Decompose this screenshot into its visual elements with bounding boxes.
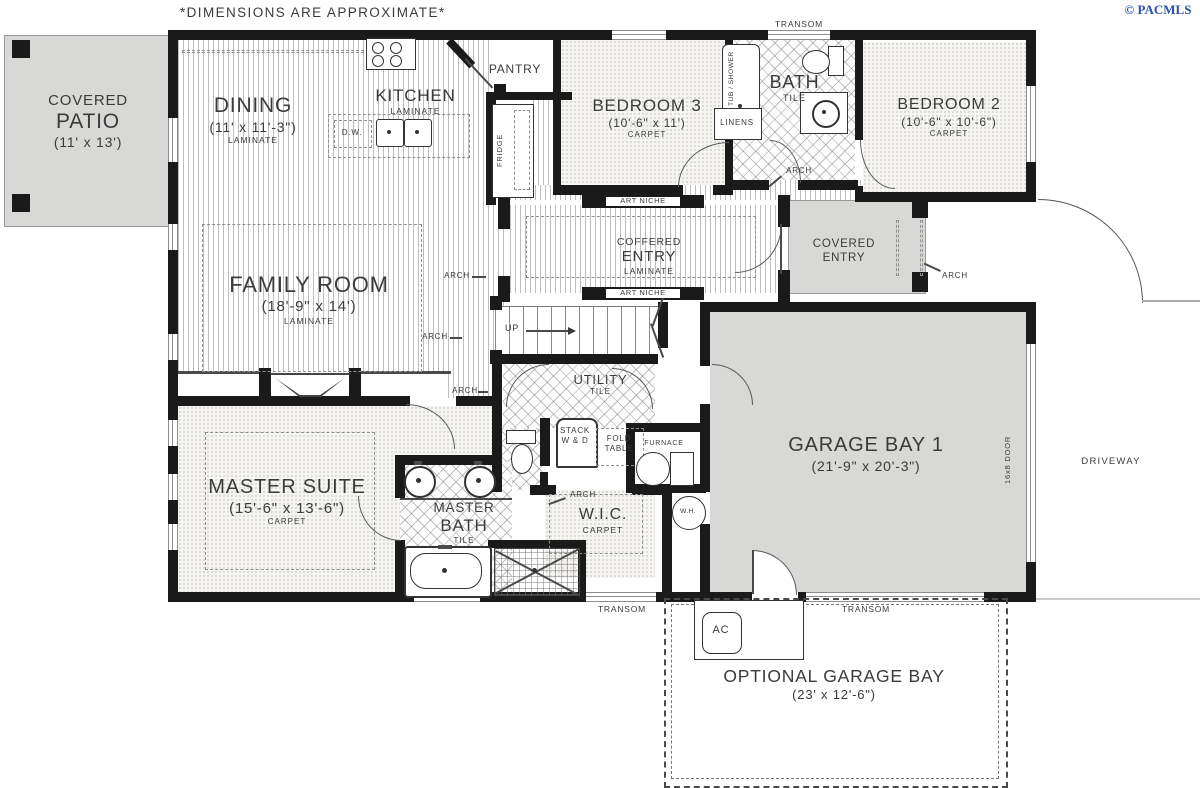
wall-segment [778,195,790,227]
furnace-unit [670,452,694,486]
art-niche-label: ART NICHE [606,289,680,298]
room-label-dining: DINING (11' x 11'-3") LAMINATE [178,94,328,145]
wall-segment [855,186,863,202]
copyright-watermark: © PACMLS [1118,2,1198,17]
up-label: UP [500,323,524,334]
wall-segment [666,30,768,40]
wall-segment [830,30,862,40]
wall-segment [456,396,496,406]
site-line [1142,300,1200,302]
arch-label: ARCH [782,166,816,175]
sink-drain [387,130,391,134]
entry-swing-arc [1038,199,1143,303]
arch-label: ARCH [448,386,482,395]
fridge-label: FRIDGE [496,112,512,188]
arch-label: ARCH [440,271,474,280]
arch-leader [478,391,488,393]
door-leaf [780,224,782,274]
art-niche-label: ART NICHE [606,197,680,206]
arch-label: ARCH [566,490,600,499]
site-line [1036,598,1200,600]
stack-wd-label: STACK W & D [551,426,599,447]
patio-post [12,40,30,58]
arch-leader [924,263,941,272]
toilet-bowl [511,444,533,474]
fireplace-hearth-inner [271,375,349,395]
wall-segment [168,396,410,406]
wall-segment [662,485,672,592]
room-label-kitchen: KITCHEN LAMINATE [348,86,483,116]
room-label-utility: UTILITY TILE [548,372,653,397]
wall-segment [778,270,790,302]
wall-segment [1026,30,1036,86]
room-label-covered-entry: COVERED ENTRY [795,238,893,265]
hall-floor [533,100,553,185]
up-arrow-head [568,327,576,335]
floor-plan: *DIMENSIONS ARE APPROXIMATE* © PACMLS [0,0,1200,788]
wall-segment [494,84,506,96]
room-label-bedroom3: BEDROOM 3 (10'-6" x 11') CARPET [563,96,731,140]
wall-segment [700,312,710,366]
furnace-label: FURNACE [632,440,696,448]
arch-leader [450,337,462,339]
wall-segment [168,592,414,602]
fireplace-side [349,368,361,404]
door-leaf [752,550,754,594]
patio-post [12,194,30,212]
shower-drain [532,568,537,573]
toilet-bowl [802,50,830,74]
arch-leader [472,276,486,278]
transom-window [586,592,656,602]
wall-segment [700,404,710,492]
room-label-bedroom2: BEDROOM 2 (10'-6" x 10'-6") CARPET [868,96,1030,138]
sink-drain [476,478,481,483]
room-label-optional-garage: OPTIONAL GARAGE BAY (23' x 12'-6") [668,666,1000,702]
transom-label: TRANSOM [768,19,830,29]
wall-segment [733,180,769,190]
room-label-master-suite: MASTER SUITE (15'-6" x 13'-6") CARPET [188,476,386,527]
stove-burner [390,42,402,54]
window [168,334,178,360]
room-label-pantry: PANTRY [470,62,560,76]
room-label-garage-bay1: GARAGE BAY 1 (21'-9" x 20'-3") [752,434,980,474]
wall-segment [498,195,510,229]
faucet [474,461,482,465]
window [168,524,178,550]
stove-burner [372,55,384,67]
room-label-wic: W.I.C. CARPET [556,506,650,535]
transom-window [768,30,830,40]
furnace-unit [636,452,670,486]
wall-segment [1026,302,1036,344]
arch-label: ARCH [418,332,452,341]
wall-segment [553,185,683,195]
stove-burner [390,55,402,67]
water-heater-label: W.H. [672,508,704,516]
up-arrow-line [526,330,568,332]
wall-segment [553,38,561,188]
arch-opening-line [920,220,923,276]
wall-segment [168,30,178,602]
room-label-covered-patio: COVERED PATIO (11' x 13') [10,92,166,151]
ac-label: AC [702,624,740,637]
window [168,118,178,162]
faucet [414,461,422,465]
wall-segment [700,524,710,592]
garage-door [1026,344,1036,562]
wall-segment [858,192,1036,202]
wall-segment [855,40,863,140]
wall-segment [700,302,1036,312]
faucet [438,545,452,549]
fireplace-side [259,368,271,404]
dishwasher-label: D.W. [334,128,370,137]
wall-segment [540,418,550,466]
window [168,420,178,446]
sink-drain [822,110,826,114]
window [168,224,178,250]
room-label-master-bath: MASTER BATH TILE [420,500,508,545]
room-label-family-room: FAMILY ROOM (18'-9" x 14') LAMINATE [198,272,420,326]
window [168,474,178,500]
room-label-bath: BATH TILE [752,72,837,104]
wall-segment [490,296,502,310]
wall-segment [912,198,928,218]
driveway-label: DRIVEWAY [1066,456,1156,467]
tub-drain [442,568,447,573]
fridge-door-outline [514,110,530,190]
wall-segment [500,354,658,364]
room-label-coffered-entry: COFFERED ENTRY LAMINATE [583,236,715,276]
sink-drain [416,478,421,483]
garage-door-label: 16x8 DOOR [1004,428,1018,492]
stove-burner [372,42,384,54]
wall-segment [862,30,1036,40]
toilet-tank [506,430,536,444]
bath-sink [812,100,840,128]
wall-segment [568,30,612,40]
sink-drain [415,130,419,134]
disclaimer-text: *DIMENSIONS ARE APPROXIMATE* [180,5,440,21]
arch-opening-line [896,220,899,276]
transom-label: TRANSOM [588,604,656,614]
wall-segment [398,455,498,465]
window [612,30,666,40]
wall-segment [798,180,858,190]
arch-label: ARCH [938,271,972,280]
counter-outline [182,50,364,53]
